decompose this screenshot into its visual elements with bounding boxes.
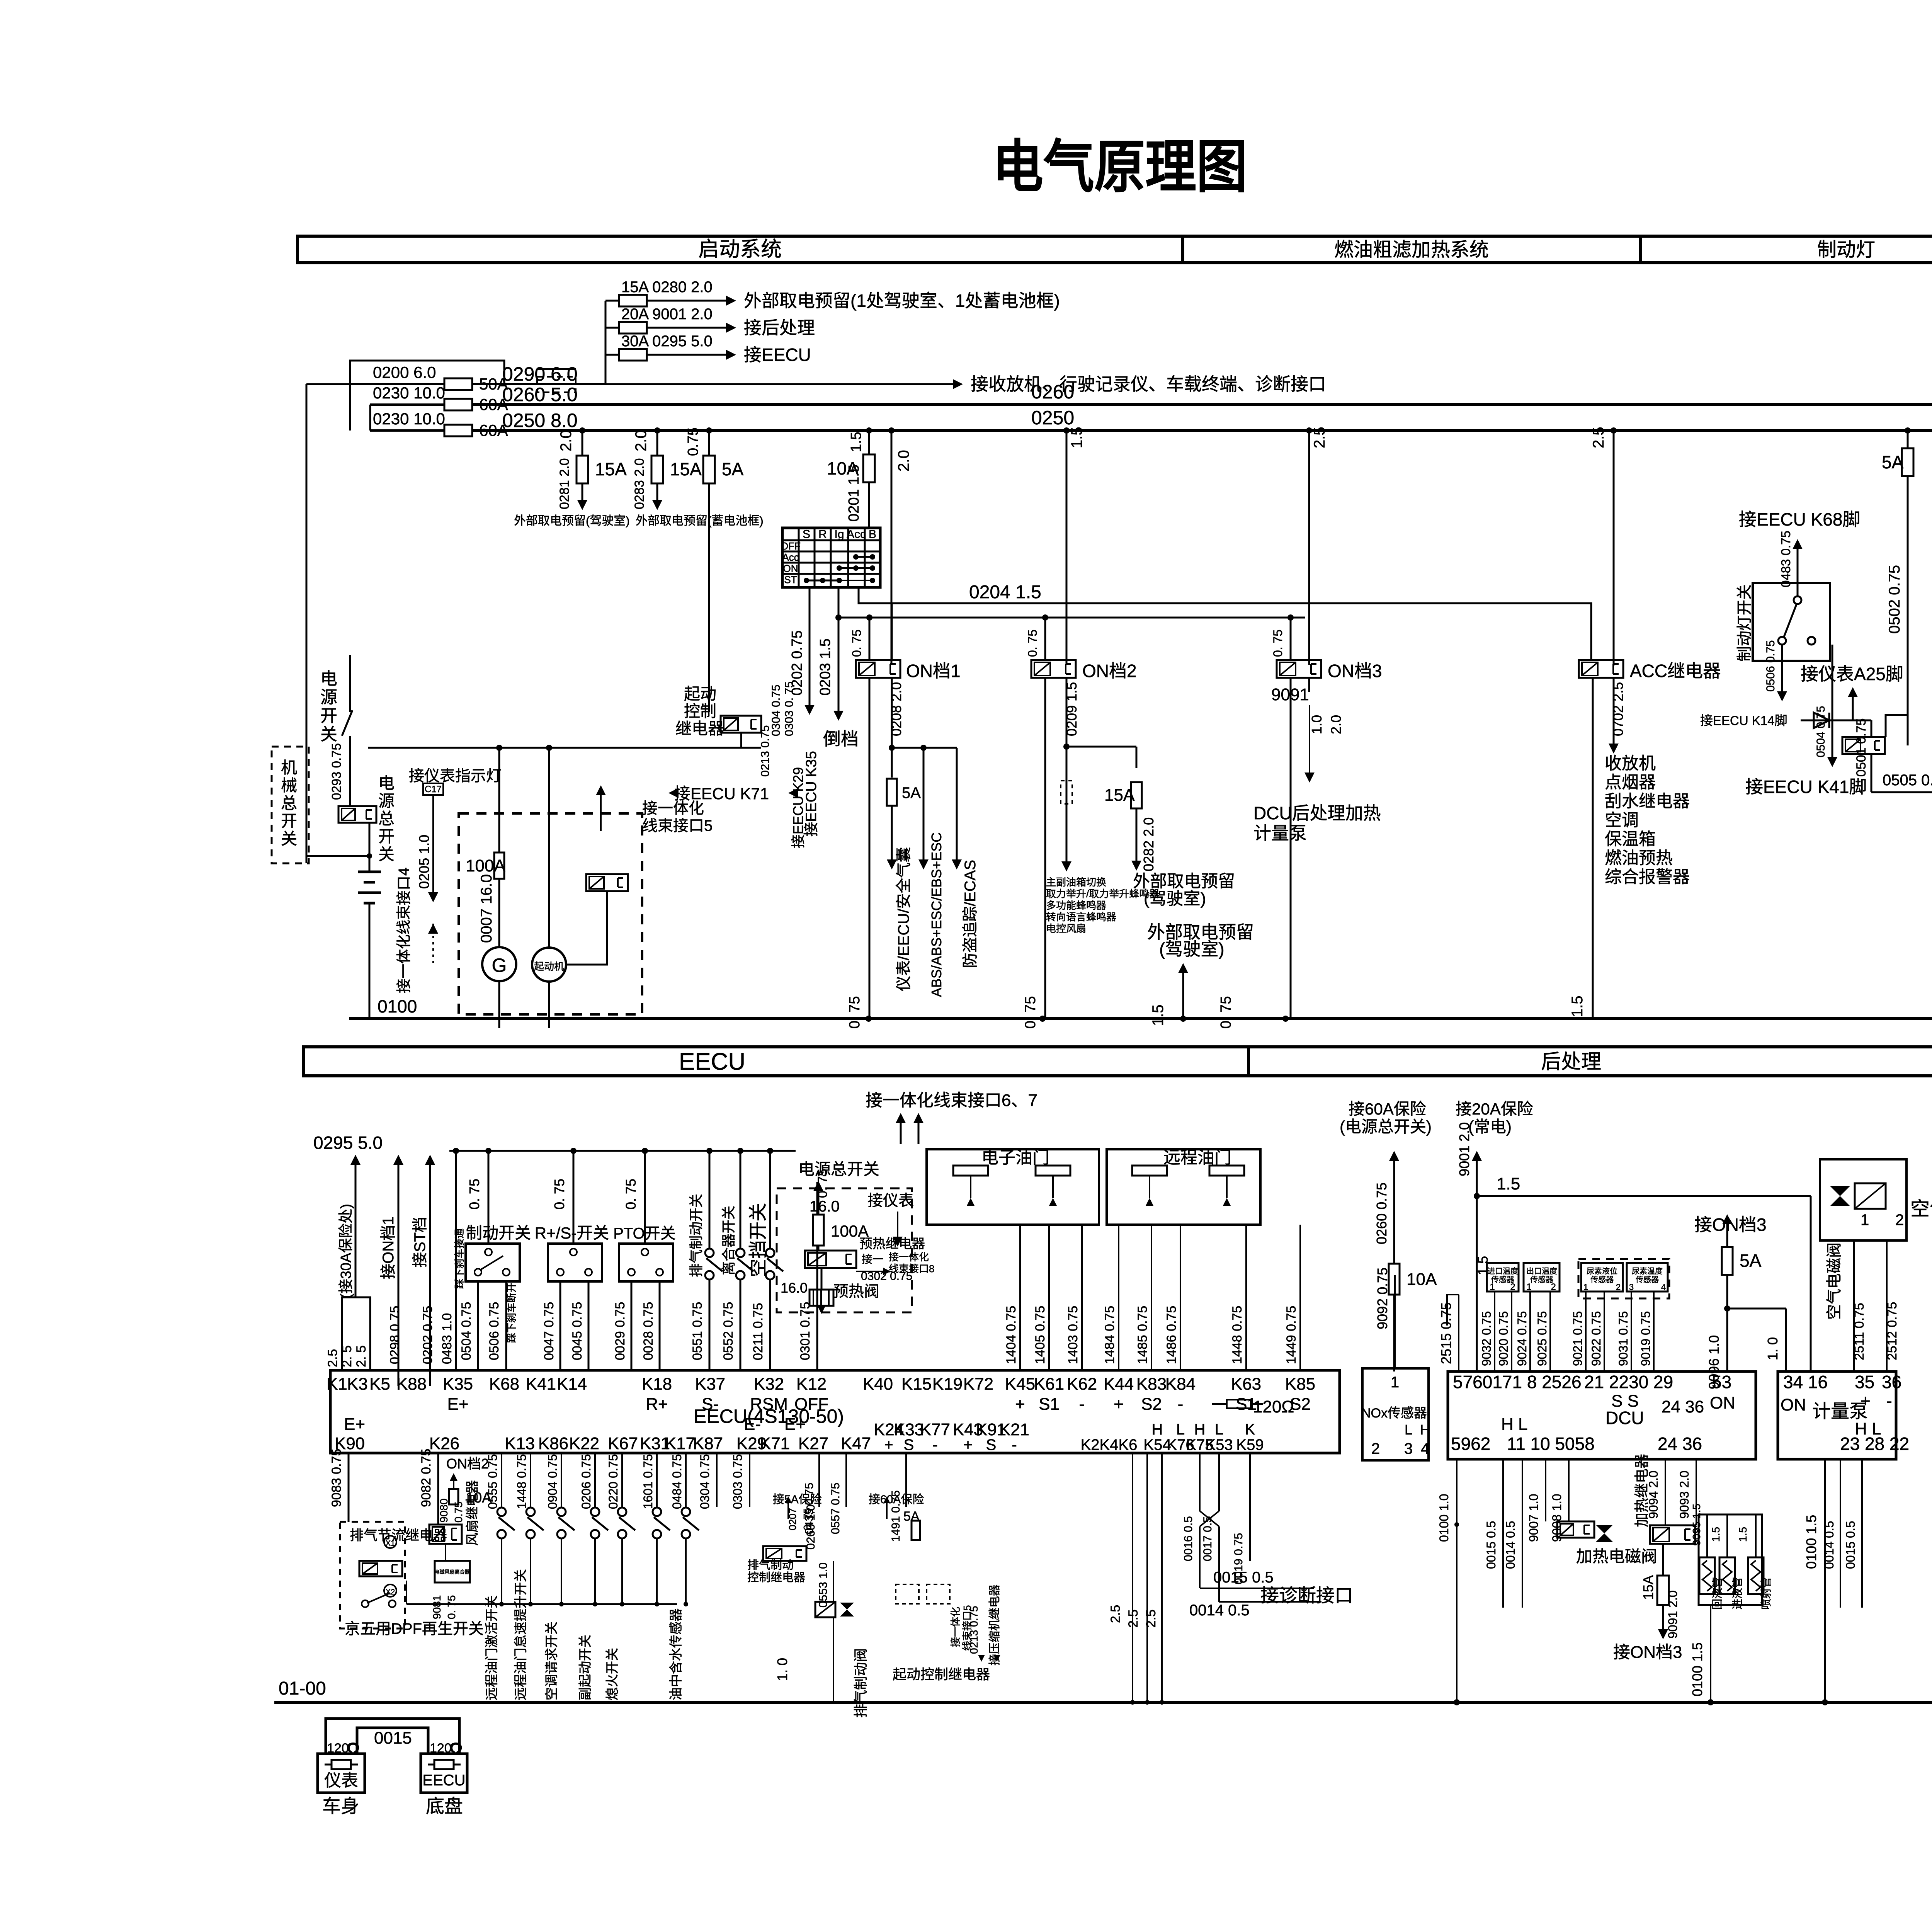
svg-text:传感器: 传感器 — [1636, 1275, 1659, 1284]
svg-text:+: + — [884, 1436, 893, 1453]
svg-text:空气阀: 空气阀 — [1910, 1198, 1932, 1220]
svg-text:0208 2.0: 0208 2.0 — [888, 682, 904, 736]
svg-text:1448 0.75: 1448 0.75 — [1230, 1306, 1245, 1364]
svg-text:1: 1 — [1526, 1282, 1531, 1292]
svg-text:15A: 15A — [1640, 1575, 1656, 1600]
svg-text:0301 0.75: 0301 0.75 — [798, 1302, 813, 1360]
svg-text:21 2230 29: 21 2230 29 — [1584, 1372, 1673, 1392]
svg-text:空调请求开关: 空调请求开关 — [544, 1622, 559, 1700]
svg-text:S1: S1 — [1039, 1395, 1060, 1414]
svg-text:9095 1.5: 9095 1.5 — [1690, 1504, 1702, 1546]
svg-text:计量泵: 计量泵 — [1812, 1401, 1868, 1422]
svg-text:京五用DPF再生开关: 京五用DPF再生开关 — [345, 1620, 484, 1637]
svg-text:16.0: 16.0 — [810, 1198, 840, 1215]
svg-text:0202 0.75: 0202 0.75 — [420, 1306, 435, 1364]
svg-text:关: 关 — [281, 830, 297, 848]
svg-text:EECU: EECU — [679, 1048, 745, 1075]
svg-text:H: H — [1152, 1421, 1163, 1438]
svg-text:0553 1.0: 0553 1.0 — [817, 1562, 830, 1608]
svg-text:K47: K47 — [841, 1434, 871, 1453]
svg-text:1485 0.75: 1485 0.75 — [1135, 1306, 1150, 1364]
svg-text:0015: 0015 — [374, 1729, 412, 1748]
svg-text:0200 6.0: 0200 6.0 — [373, 363, 436, 381]
svg-text:接后处理: 接后处理 — [744, 318, 815, 338]
svg-text:E+: E+ — [784, 1415, 806, 1434]
svg-text:加热电磁阀: 加热电磁阀 — [1576, 1547, 1657, 1565]
svg-text:1.5: 1.5 — [1569, 995, 1586, 1017]
svg-text:EECU(4S130-50): EECU(4S130-50) — [694, 1406, 844, 1427]
svg-text:0483 0.75: 0483 0.75 — [1779, 531, 1793, 587]
svg-text:K61: K61 — [1034, 1375, 1064, 1394]
svg-text:0014 0.5: 0014 0.5 — [1189, 1602, 1250, 1619]
svg-text:刮水继电器: 刮水继电器 — [1605, 792, 1690, 811]
svg-text:开: 开 — [378, 827, 395, 846]
svg-text:外部取电预留(蓄电池框): 外部取电预留(蓄电池框) — [636, 514, 764, 527]
svg-text:仪表/EECU/安全气囊: 仪表/EECU/安全气囊 — [895, 847, 912, 991]
svg-text:2.0: 2.0 — [895, 450, 912, 471]
svg-text:H L: H L — [1501, 1415, 1527, 1434]
svg-text:K40: K40 — [863, 1375, 893, 1394]
svg-text:2.5: 2.5 — [1590, 427, 1607, 448]
svg-text:0014 0.5: 0014 0.5 — [1503, 1521, 1517, 1569]
svg-text:16.0: 16.0 — [781, 1280, 808, 1296]
svg-text:燃油粗滤加热系统: 燃油粗滤加热系统 — [1334, 239, 1489, 260]
svg-text:开: 开 — [281, 812, 297, 830]
svg-text:2: 2 — [1510, 1282, 1515, 1292]
svg-text:踩下刹车断开: 踩下刹车断开 — [506, 1283, 517, 1343]
svg-text:0295 5.0: 0295 5.0 — [313, 1133, 383, 1153]
svg-text:0483 1.0: 0483 1.0 — [440, 1313, 454, 1364]
svg-text:排气制动: 排气制动 — [747, 1559, 794, 1572]
svg-text:K12: K12 — [796, 1375, 827, 1394]
svg-text:5A: 5A — [903, 1509, 920, 1524]
svg-text:0203 1.5: 0203 1.5 — [817, 638, 833, 696]
svg-text:9001 2.0: 9001 2.0 — [1456, 1122, 1472, 1176]
svg-text:0029 0.75: 0029 0.75 — [613, 1302, 628, 1360]
svg-text:后处理: 后处理 — [1541, 1051, 1601, 1073]
svg-text:K17: K17 — [665, 1434, 695, 1453]
svg-text:0015 0.5: 0015 0.5 — [1213, 1569, 1274, 1586]
svg-text:尿素液位: 尿素液位 — [1587, 1267, 1617, 1276]
svg-text:0207: 0207 — [787, 1508, 798, 1530]
svg-text:机: 机 — [281, 759, 297, 777]
svg-text:2. 5: 2. 5 — [340, 1345, 354, 1367]
svg-text:控制: 控制 — [684, 702, 716, 720]
svg-text:0. 75: 0. 75 — [1026, 630, 1039, 657]
svg-text:保温箱: 保温箱 — [1605, 830, 1656, 849]
svg-text:-: - — [932, 1436, 937, 1453]
svg-text:远程油门激活开关: 远程油门激活开关 — [485, 1595, 499, 1700]
svg-text:2.5: 2.5 — [325, 1349, 340, 1367]
svg-text:0220 0.75: 0220 0.75 — [606, 1454, 620, 1509]
svg-text:0230 10.0: 0230 10.0 — [373, 410, 445, 428]
svg-text:空气电磁阀: 空气电磁阀 — [1826, 1242, 1843, 1320]
svg-text:15A: 15A — [670, 459, 702, 479]
svg-text:X1: X1 — [386, 1539, 395, 1548]
svg-text:R+/S-开关: R+/S-开关 — [535, 1224, 609, 1242]
svg-text:S: S — [803, 528, 810, 541]
svg-text:OFF: OFF — [781, 540, 801, 552]
svg-text:9019 0.75: 9019 0.75 — [1639, 1311, 1653, 1366]
svg-text:+: + — [1015, 1395, 1025, 1414]
svg-text:2.0: 2.0 — [558, 430, 575, 451]
svg-text:1. 0: 1. 0 — [774, 1658, 790, 1681]
svg-text:0. 75: 0. 75 — [1022, 996, 1039, 1029]
svg-text:9092 0.75: 9092 0.75 — [1374, 1268, 1390, 1329]
svg-text:接一体化线束接口4: 接一体化线束接口4 — [396, 868, 412, 993]
svg-text:0. 75: 0. 75 — [446, 1595, 457, 1619]
svg-text:2511 0.75: 2511 0.75 — [1852, 1303, 1867, 1360]
svg-text:3: 3 — [1629, 1282, 1634, 1292]
svg-text:0. 75: 0. 75 — [623, 1179, 639, 1210]
svg-text:2.0: 2.0 — [1328, 715, 1344, 734]
svg-text:外部取电预留(驾驶室): 外部取电预留(驾驶室) — [514, 514, 630, 527]
svg-text:(驾驶室): (驾驶室) — [1144, 889, 1206, 908]
svg-text:K44: K44 — [1104, 1375, 1134, 1394]
svg-text:C17: C17 — [425, 784, 442, 795]
svg-text:L: L — [1176, 1421, 1185, 1438]
svg-text:1.5: 1.5 — [1710, 1527, 1722, 1542]
svg-text:0282 2.0: 0282 2.0 — [1141, 817, 1156, 871]
svg-text:0484 0.75: 0484 0.75 — [670, 1454, 684, 1509]
svg-text:E-: E- — [744, 1415, 761, 1434]
svg-text:电气原理图: 电气原理图 — [992, 135, 1247, 199]
svg-text:K72: K72 — [963, 1375, 993, 1394]
svg-text:2515 0.75: 2515 0.75 — [1438, 1302, 1454, 1364]
svg-text:0260: 0260 — [1031, 381, 1074, 403]
svg-text:熄火开关: 熄火开关 — [605, 1648, 620, 1700]
svg-text:接一: 接一 — [862, 1253, 883, 1265]
svg-text:K3: K3 — [347, 1375, 368, 1394]
svg-text:0014 0.5: 0014 0.5 — [1822, 1521, 1836, 1569]
svg-text:转向语言蜂鸣器: 转向语言蜂鸣器 — [1046, 911, 1116, 923]
svg-text:接EECU K68脚: 接EECU K68脚 — [1739, 509, 1860, 529]
svg-text:0.75: 0.75 — [452, 1502, 464, 1523]
svg-text:0702 2.5: 0702 2.5 — [1610, 682, 1626, 736]
svg-text:Acc: Acc — [847, 528, 866, 541]
svg-text:接EECU K14脚: 接EECU K14脚 — [1700, 713, 1787, 728]
svg-text:K18: K18 — [642, 1375, 672, 1394]
svg-text:接仪表指示灯: 接仪表指示灯 — [409, 767, 502, 784]
svg-text:0502 0.75: 0502 0.75 — [1886, 565, 1903, 634]
svg-text:ON: ON — [1781, 1395, 1806, 1414]
svg-text:K22: K22 — [569, 1434, 599, 1453]
svg-text:Ω: Ω — [346, 1739, 360, 1758]
svg-text:电子油门: 电子油门 — [981, 1148, 1049, 1167]
svg-text:G: G — [492, 955, 507, 976]
svg-text:0016 0.5: 0016 0.5 — [1182, 1516, 1195, 1561]
svg-text:0. 75: 0. 75 — [1218, 996, 1234, 1029]
svg-text:起动: 起动 — [684, 685, 716, 703]
svg-text:NOx传感器: NOx传感器 — [1361, 1406, 1427, 1421]
svg-text:接收放机、行驶记录仪、车载终端、诊断接口: 接收放机、行驶记录仪、车载终端、诊断接口 — [971, 374, 1326, 394]
svg-text:E+: E+ — [447, 1395, 468, 1414]
svg-text:2.5: 2.5 — [1311, 427, 1328, 448]
svg-text:1.5: 1.5 — [1068, 427, 1085, 448]
svg-text:0552 0.75: 0552 0.75 — [721, 1302, 736, 1360]
svg-text:进口温度: 进口温度 — [1487, 1267, 1518, 1276]
svg-text:9032 0.75: 9032 0.75 — [1480, 1311, 1493, 1366]
svg-text:0506 0.75: 0506 0.75 — [1764, 640, 1777, 692]
svg-text:关: 关 — [320, 725, 337, 744]
svg-text:1: 1 — [1861, 1212, 1869, 1229]
svg-text:H: H — [1420, 1422, 1430, 1438]
svg-text:预热继电器: 预热继电器 — [859, 1237, 925, 1251]
svg-text:K68: K68 — [489, 1375, 519, 1394]
svg-text:综合报警器: 综合报警器 — [1605, 868, 1690, 887]
svg-text:K41: K41 — [526, 1375, 556, 1394]
svg-text:电: 电 — [320, 669, 337, 688]
svg-text:5760171 8 2526: 5760171 8 2526 — [1453, 1372, 1582, 1392]
svg-text:计量泵: 计量泵 — [1253, 823, 1307, 843]
svg-text:K15: K15 — [901, 1375, 932, 1394]
svg-text:0298 0.75: 0298 0.75 — [388, 1306, 402, 1364]
svg-text:0201 1.5: 0201 1.5 — [846, 465, 862, 522]
svg-text:电源总开关: 电源总开关 — [798, 1160, 879, 1178]
svg-text:电磁风扇离合器: 电磁风扇离合器 — [434, 1569, 469, 1575]
svg-text:9094 2.0: 9094 2.0 — [1646, 1470, 1660, 1519]
svg-text:1449 0.75: 1449 0.75 — [1284, 1306, 1299, 1364]
svg-text:K63: K63 — [1231, 1375, 1261, 1394]
svg-text:2.5: 2.5 — [1144, 1610, 1158, 1628]
svg-text:K13: K13 — [505, 1434, 535, 1453]
svg-text:5A: 5A — [1740, 1251, 1762, 1271]
svg-text:接压缩机继电器: 接压缩机继电器 — [988, 1584, 1001, 1666]
svg-text:K: K — [1245, 1421, 1255, 1438]
svg-text:ON档2: ON档2 — [1082, 661, 1137, 681]
svg-text:+: + — [963, 1436, 972, 1453]
svg-text:1: 1 — [1583, 1282, 1588, 1292]
svg-text:空调: 空调 — [1605, 811, 1639, 830]
svg-text:0304 0.75: 0304 0.75 — [698, 1454, 712, 1509]
svg-text:0100: 0100 — [378, 996, 417, 1016]
svg-text:R+: R+ — [646, 1395, 668, 1414]
svg-text:电控风扇: 电控风扇 — [1046, 923, 1086, 934]
svg-text:起动机: 起动机 — [534, 961, 564, 972]
svg-text:9025 0.75: 9025 0.75 — [1535, 1311, 1549, 1366]
svg-text:防盗追踪/ECAS: 防盗追踪/ECAS — [962, 860, 979, 968]
svg-text:传感器: 传感器 — [1530, 1275, 1553, 1284]
svg-text:风扇继电器: 风扇继电器 — [465, 1480, 480, 1546]
svg-text:K59: K59 — [1236, 1436, 1264, 1453]
svg-text:2: 2 — [1895, 1212, 1904, 1229]
svg-text:0100 1.5: 0100 1.5 — [1689, 1642, 1705, 1696]
svg-text:排气制动开关: 排气制动开关 — [688, 1194, 704, 1277]
svg-text:ACC继电器: ACC继电器 — [1630, 661, 1721, 681]
svg-text:1.0: 1.0 — [1309, 715, 1325, 734]
svg-text:01-00: 01-00 — [279, 1678, 326, 1699]
svg-text:0204 1.5: 0204 1.5 — [969, 582, 1041, 602]
svg-text:24 36: 24 36 — [1662, 1397, 1704, 1416]
svg-text:DCU: DCU — [1605, 1408, 1644, 1428]
svg-text:36: 36 — [1882, 1372, 1901, 1392]
svg-text:0. 75: 0. 75 — [551, 1179, 567, 1210]
svg-text:H: H — [1194, 1421, 1206, 1438]
svg-text:S: S — [904, 1436, 914, 1453]
svg-text:0557 0.75: 0557 0.75 — [829, 1483, 842, 1534]
svg-text:15A: 15A — [595, 459, 627, 479]
svg-text:0. 75: 0. 75 — [466, 1179, 482, 1210]
svg-text:油中含水传感器: 油中含水传感器 — [669, 1608, 684, 1700]
svg-text:0213 0.75: 0213 0.75 — [968, 1606, 980, 1654]
svg-text:1448 0.75: 1448 0.75 — [515, 1454, 529, 1509]
svg-text:9082 0.75: 9082 0.75 — [419, 1449, 434, 1507]
svg-text:远程油门怠速提升开关: 远程油门怠速提升开关 — [514, 1569, 528, 1700]
svg-text:100A: 100A — [466, 856, 505, 875]
svg-text:械: 械 — [281, 776, 297, 795]
svg-text:ON档2: ON档2 — [446, 1456, 489, 1472]
svg-text:1403 0.75: 1403 0.75 — [1066, 1306, 1080, 1364]
svg-text:34 16: 34 16 — [1783, 1372, 1828, 1392]
svg-text:接一体化: 接一体化 — [642, 800, 704, 817]
svg-text:接ON档1: 接ON档1 — [380, 1217, 397, 1279]
svg-text:R: R — [818, 528, 827, 541]
svg-text:E+: E+ — [344, 1415, 365, 1434]
svg-text:K83: K83 — [1136, 1375, 1167, 1394]
svg-text:0260 5.0: 0260 5.0 — [502, 384, 578, 405]
svg-text:制动开关: 制动开关 — [466, 1224, 531, 1242]
svg-text:1. 0: 1. 0 — [1765, 1337, 1781, 1360]
svg-text:燃油预热: 燃油预热 — [1605, 849, 1673, 868]
svg-text:EECU: EECU — [422, 1772, 465, 1789]
svg-text:ON: ON — [1710, 1394, 1735, 1412]
svg-text:0250 8.0: 0250 8.0 — [502, 410, 578, 431]
svg-text:接ST档: 接ST档 — [412, 1217, 429, 1268]
svg-text:倒档: 倒档 — [823, 729, 859, 749]
svg-text:9031 0.75: 9031 0.75 — [1616, 1311, 1630, 1366]
svg-text:-: - — [1079, 1395, 1085, 1414]
svg-text:5A: 5A — [722, 459, 744, 479]
svg-text:源: 源 — [378, 792, 395, 810]
svg-text:9083 0.75: 9083 0.75 — [329, 1449, 344, 1507]
svg-text:尿素温度: 尿素温度 — [1632, 1267, 1663, 1276]
svg-text:K35: K35 — [443, 1375, 473, 1394]
svg-text:起动控制继电器: 起动控制继电器 — [893, 1666, 990, 1682]
svg-text:24 36: 24 36 — [1658, 1434, 1702, 1454]
svg-text:2.0: 2.0 — [633, 430, 650, 451]
svg-text:9080: 9080 — [438, 1499, 450, 1523]
svg-text:开: 开 — [320, 706, 337, 725]
svg-text:1.5: 1.5 — [1497, 1174, 1520, 1193]
svg-text:K32: K32 — [754, 1375, 784, 1394]
svg-text:0904 0.75: 0904 0.75 — [546, 1454, 560, 1509]
svg-text:接诊断接口: 接诊断接口 — [1260, 1586, 1353, 1606]
svg-text:ST: ST — [784, 574, 797, 585]
svg-text:20A 9001 2.0: 20A 9001 2.0 — [621, 306, 713, 323]
svg-text:接一体化线束接口6、7: 接一体化线束接口6、7 — [866, 1091, 1037, 1110]
svg-text:主副油箱切换: 主副油箱切换 — [1046, 876, 1106, 888]
svg-text:0100 1.5: 0100 1.5 — [1803, 1515, 1819, 1569]
svg-text:K37: K37 — [695, 1375, 725, 1394]
svg-text:0.75: 0.75 — [685, 427, 701, 456]
svg-text:0. 75: 0. 75 — [850, 630, 864, 657]
svg-text:接一体化: 接一体化 — [889, 1251, 929, 1263]
svg-text:进液管: 进液管 — [1731, 1577, 1743, 1610]
svg-text:制动灯开关: 制动灯开关 — [1736, 584, 1753, 662]
svg-text:4: 4 — [1421, 1440, 1429, 1457]
svg-text:2.5: 2.5 — [1126, 1610, 1141, 1628]
svg-text:排气制动阀: 排气制动阀 — [853, 1648, 869, 1718]
svg-text:2: 2 — [1616, 1282, 1621, 1292]
svg-text:接EECU: 接EECU — [744, 345, 811, 365]
svg-text:-: - — [1886, 1392, 1892, 1411]
svg-text:5A: 5A — [902, 784, 921, 801]
svg-text:K5: K5 — [369, 1375, 390, 1394]
svg-text:9081: 9081 — [431, 1595, 443, 1619]
svg-text:K62: K62 — [1067, 1375, 1097, 1394]
svg-text:K53: K53 — [1205, 1436, 1233, 1453]
svg-text:源: 源 — [320, 688, 337, 707]
svg-text:1484 0.75: 1484 0.75 — [1102, 1306, 1117, 1364]
svg-text:车身: 车身 — [322, 1796, 359, 1817]
svg-text:K14: K14 — [557, 1375, 587, 1394]
svg-text:副起动开关: 副起动开关 — [578, 1635, 593, 1700]
svg-text:0290 6.0: 0290 6.0 — [502, 363, 578, 385]
svg-text:K84: K84 — [1165, 1375, 1196, 1394]
svg-text:9022 0.75: 9022 0.75 — [1589, 1311, 1603, 1366]
svg-text:5A: 5A — [1882, 452, 1904, 472]
svg-text:K71: K71 — [760, 1434, 790, 1453]
svg-text:2. 5: 2. 5 — [354, 1345, 369, 1367]
svg-text:0015 0.5: 0015 0.5 — [1484, 1521, 1498, 1569]
svg-text:L: L — [1215, 1421, 1223, 1438]
svg-text:9091: 9091 — [1271, 685, 1309, 704]
svg-text:接ON档3: 接ON档3 — [1694, 1215, 1767, 1235]
svg-text:接EECU K29: 接EECU K29 — [790, 767, 806, 848]
svg-text:收放机: 收放机 — [1605, 754, 1656, 773]
svg-text:继电器: 继电器 — [675, 720, 724, 738]
svg-text:空挡开关: 空挡开关 — [748, 1203, 769, 1277]
svg-text:ON档1: ON档1 — [906, 661, 961, 681]
svg-text:K85: K85 — [1285, 1375, 1315, 1394]
svg-text:(接30A保险处): (接30A保险处) — [338, 1204, 354, 1298]
svg-text:喷射管: 喷射管 — [1760, 1577, 1772, 1610]
svg-text:出口温度: 出口温度 — [1526, 1267, 1557, 1276]
svg-text:9007 1.0: 9007 1.0 — [1527, 1494, 1541, 1542]
svg-text:ABS/ABS+ESC/EBS+ESC: ABS/ABS+ESC/EBS+ESC — [929, 832, 944, 997]
svg-text:外部取电预留: 外部取电预留 — [1133, 872, 1235, 891]
svg-text:远程油门: 远程油门 — [1163, 1148, 1231, 1167]
svg-text:控制继电器: 控制继电器 — [747, 1571, 805, 1584]
svg-text:11 10 5058: 11 10 5058 — [1507, 1434, 1595, 1454]
svg-text:接仪表: 接仪表 — [867, 1192, 914, 1209]
svg-text:0230 10.0: 0230 10.0 — [373, 384, 445, 402]
svg-text:启动系统: 启动系统 — [698, 238, 782, 261]
svg-text:接仪表A25脚: 接仪表A25脚 — [1801, 664, 1903, 684]
svg-text:3: 3 — [1404, 1440, 1413, 1457]
svg-text:1: 1 — [1490, 1282, 1495, 1292]
svg-text:线束接口8: 线束接口8 — [889, 1263, 934, 1274]
svg-text:15A 0280 2.0: 15A 0280 2.0 — [621, 279, 713, 296]
svg-text:K86: K86 — [538, 1434, 568, 1453]
svg-text:1.5: 1.5 — [848, 432, 864, 452]
svg-text:点烟器: 点烟器 — [1605, 773, 1656, 792]
svg-text:9020 0.75: 9020 0.75 — [1497, 1311, 1510, 1366]
svg-text:0213 0.75: 0213 0.75 — [759, 725, 772, 777]
svg-text:0. 75: 0. 75 — [1271, 630, 1285, 657]
svg-text:0293 0.75: 0293 0.75 — [329, 743, 344, 800]
svg-text:0260 0.75: 0260 0.75 — [1374, 1183, 1389, 1244]
svg-text:0015 0.5: 0015 0.5 — [1844, 1521, 1857, 1569]
svg-text:10A: 10A — [1406, 1270, 1437, 1289]
svg-text:2: 2 — [1551, 1282, 1556, 1292]
svg-text:(驾驶室): (驾驶室) — [1159, 939, 1225, 959]
svg-text:1486 0.75: 1486 0.75 — [1164, 1306, 1179, 1364]
svg-text:关: 关 — [378, 845, 395, 863]
svg-text:23 28 22: 23 28 22 — [1840, 1434, 1909, 1454]
svg-text:0250: 0250 — [1031, 407, 1074, 429]
svg-text:1: 1 — [1391, 1374, 1399, 1391]
